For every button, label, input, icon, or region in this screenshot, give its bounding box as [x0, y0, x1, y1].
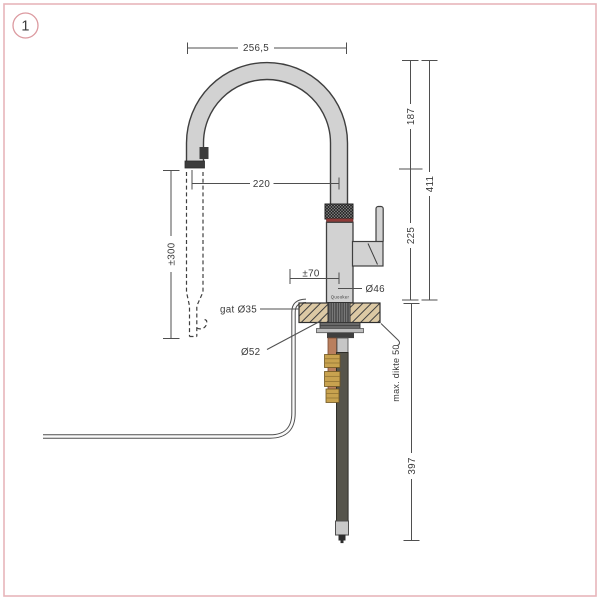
handle-base-block — [353, 242, 384, 267]
dim-top-to-spout: 187 — [406, 108, 417, 125]
gray-pipe-segment — [337, 338, 348, 353]
mounting-nut-washer — [317, 323, 364, 339]
dim-base-offset: ±70 — [302, 269, 319, 280]
faucet-dimension-diagram: 1 Quooker — [0, 0, 600, 600]
dim-body-diameter: Ø46 — [366, 284, 386, 295]
handle-lever — [376, 207, 383, 244]
dim-mounting-hole: gat Ø35 — [220, 305, 257, 316]
dim-spout-width: 256,5 — [243, 43, 269, 54]
dim-flange-diameter: Ø52 — [241, 347, 260, 358]
brass-fittings — [325, 355, 341, 403]
dim-spout-to-counter: 225 — [406, 227, 417, 244]
dim-below-counter: 397 — [407, 457, 418, 474]
faucet-body — [327, 222, 354, 302]
dim-total-above-counter: 411 — [425, 176, 436, 193]
pullout-head-dashed-outline — [187, 172, 207, 337]
dim-max-counter-thickness: max. dikte 50 — [391, 344, 401, 401]
threaded-shank — [328, 303, 350, 324]
spray-head-button — [200, 147, 209, 159]
dim-spout-reach: 220 — [253, 179, 270, 190]
flexible-hose — [43, 301, 306, 437]
tube-end-tip — [341, 541, 344, 544]
technical-drawing-page: 1 Quooker — [0, 0, 600, 600]
spray-head-face — [185, 161, 205, 168]
knurled-ring — [325, 204, 353, 219]
dim-hose-pullout: ±300 — [166, 242, 177, 265]
brand-label: Quooker — [331, 295, 350, 300]
figure-number: 1 — [21, 19, 29, 35]
tube-end-cap — [336, 521, 349, 535]
tube-end-connector — [339, 535, 346, 541]
